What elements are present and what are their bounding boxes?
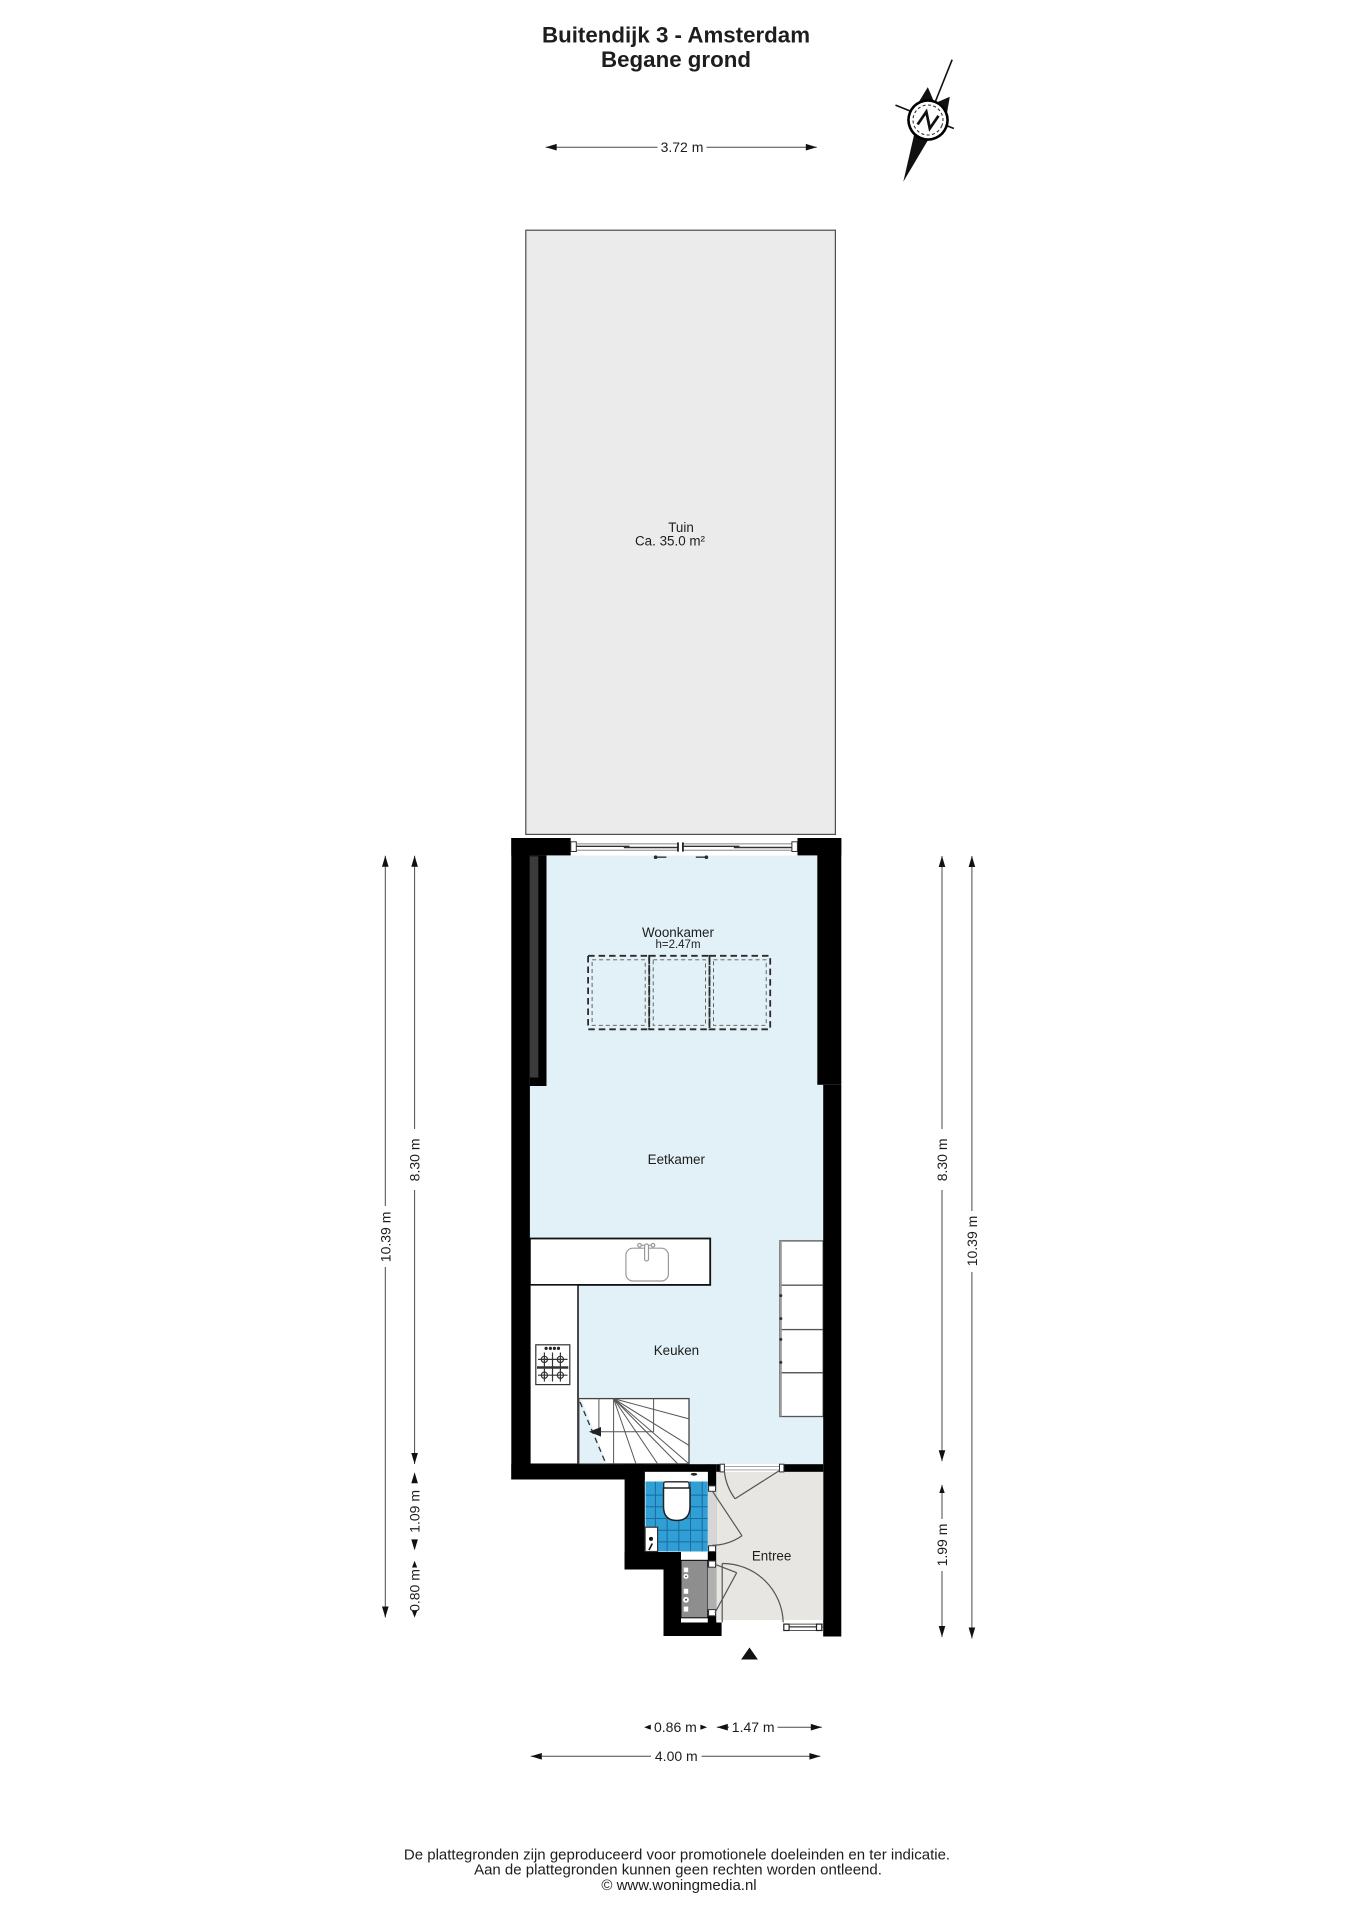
svg-text:1.47 m: 1.47 m (732, 1719, 775, 1735)
svg-text:3.72 m: 3.72 m (661, 139, 704, 155)
svg-text:8.30 m: 8.30 m (934, 1138, 950, 1181)
svg-text:1.09 m: 1.09 m (407, 1490, 423, 1533)
svg-text:© www.woningmedia.nl: © www.woningmedia.nl (601, 1877, 756, 1894)
svg-text:Buitendijk 3 - Amsterdam: Buitendijk 3 - Amsterdam (542, 23, 810, 48)
svg-text:Ca. 35.0 m²: Ca. 35.0 m² (635, 533, 705, 548)
svg-text:h=2.47m: h=2.47m (655, 939, 700, 951)
svg-text:Entree: Entree (752, 1549, 791, 1564)
svg-text:8.30 m: 8.30 m (407, 1138, 423, 1181)
svg-text:Woonkamer: Woonkamer (642, 925, 714, 940)
svg-text:0.86 m: 0.86 m (654, 1719, 697, 1735)
svg-text:0.80 m: 0.80 m (407, 1569, 423, 1612)
svg-text:4.00 m: 4.00 m (655, 1748, 698, 1764)
svg-text:1.99 m: 1.99 m (934, 1524, 950, 1567)
svg-text:Eetkamer: Eetkamer (648, 1152, 706, 1167)
svg-text:10.39 m: 10.39 m (377, 1212, 393, 1263)
svg-text:10.39 m: 10.39 m (964, 1216, 980, 1267)
svg-text:Begane grond: Begane grond (601, 47, 751, 72)
svg-text:Keuken: Keuken (654, 1343, 699, 1358)
